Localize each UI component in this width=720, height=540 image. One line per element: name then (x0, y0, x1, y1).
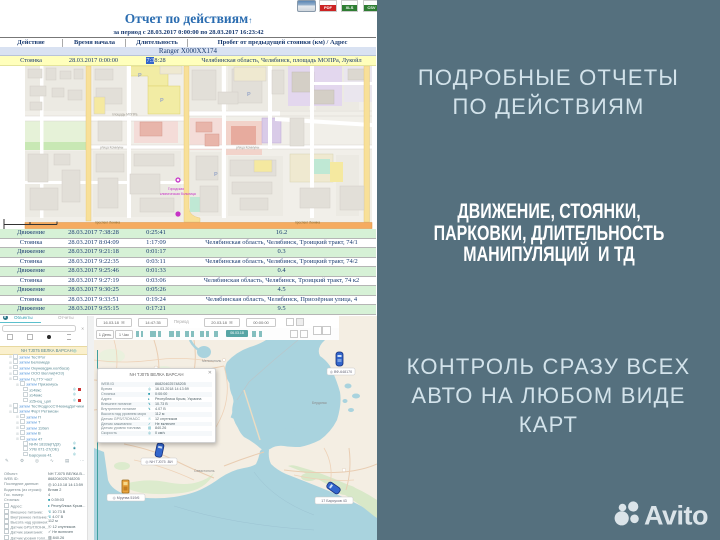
svg-text:P: P (247, 92, 251, 98)
svg-text:◎ NH TJ075 .ВИ: ◎ NH TJ075 .ВИ (145, 460, 173, 464)
svg-text:P: P (138, 73, 142, 79)
svg-text:P: P (214, 172, 218, 178)
svg-text:Avito: Avito (644, 501, 708, 531)
svg-text:клиническая больница: клиническая больница (160, 192, 196, 196)
svg-text:Городская: Городская (168, 187, 184, 191)
svg-text:◎ ВФ-648170: ◎ ВФ-648170 (330, 370, 352, 374)
svg-text:проспект Ленина: проспект Ленина (95, 221, 120, 225)
svg-text:Севастополь: Севастополь (194, 469, 215, 473)
svg-text:улица Коммуны: улица Коммуны (236, 146, 260, 150)
svg-text:P: P (160, 98, 164, 104)
svg-text:Мелитополь: Мелитополь (202, 359, 222, 363)
svg-text:Бердянск: Бердянск (312, 401, 327, 405)
svg-text:улица Коммуны: улица Коммуны (100, 146, 124, 150)
svg-text:◎ Мрунва 519/6: ◎ Мрунва 519/6 (113, 496, 140, 500)
svg-text:площадь МОПРа: площадь МОПРа (112, 113, 138, 117)
svg-text:проспект Ленина: проспект Ленина (295, 221, 320, 225)
svg-text:17 Барсуков 43: 17 Барсуков 43 (321, 499, 346, 503)
